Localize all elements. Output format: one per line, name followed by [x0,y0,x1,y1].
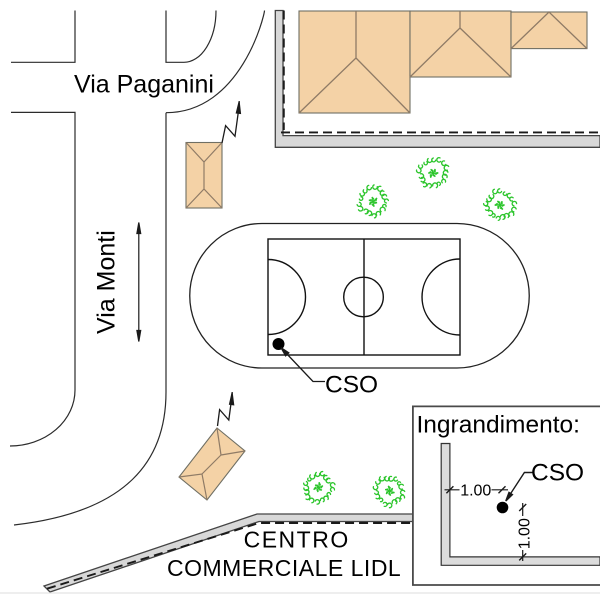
svg-text:Ingrandimento:: Ingrandimento: [417,411,580,438]
svg-text:CSO: CSO [325,372,378,399]
svg-text:Via Monti: Via Monti [93,230,121,334]
svg-text:COMMERCIALE LIDL: COMMERCIALE LIDL [167,555,401,581]
svg-text:CSO: CSO [531,460,584,487]
svg-text:1.00: 1.00 [460,483,491,500]
svg-text:Via Paganini: Via Paganini [74,71,214,99]
svg-text:1.00: 1.00 [517,518,534,549]
svg-text:CENTRO: CENTRO [244,527,350,553]
